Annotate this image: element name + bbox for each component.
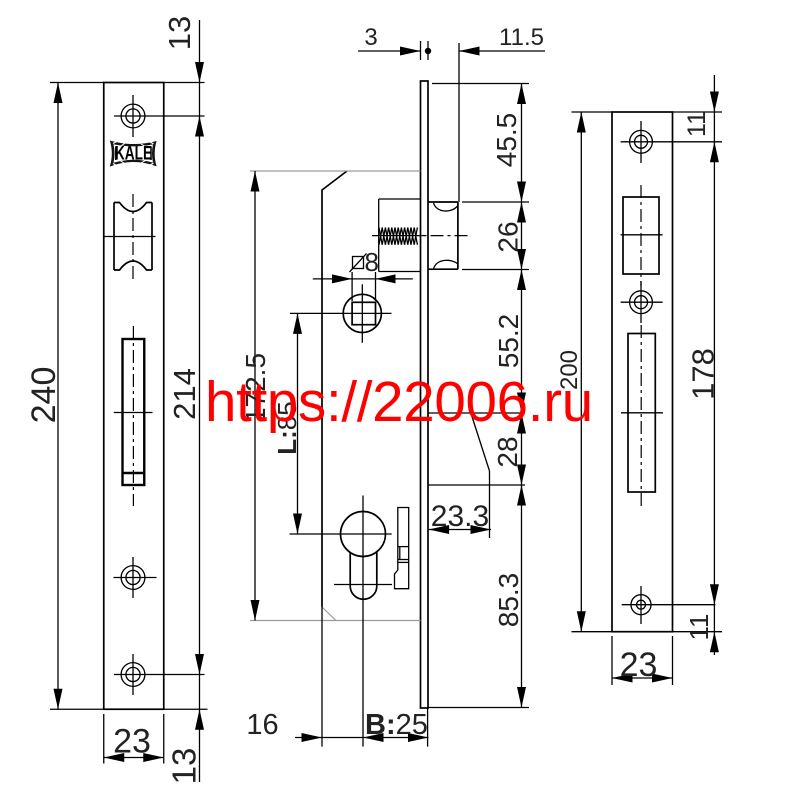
svg-text:55.2: 55.2 [493,314,524,369]
svg-text:23: 23 [620,646,658,684]
svg-text:16: 16 [246,709,278,741]
svg-text:214: 214 [167,368,202,420]
svg-text:3: 3 [364,24,377,51]
svg-text:85.3: 85.3 [493,573,524,628]
svg-text:28: 28 [492,436,523,467]
svg-text:11.5: 11.5 [499,24,544,51]
svg-text:240: 240 [25,367,63,424]
svg-text:23: 23 [113,723,151,761]
svg-text:KALE: KALE [115,142,152,164]
svg-text:178: 178 [686,348,721,400]
svg-text:B:25: B:25 [365,709,428,741]
svg-text:13: 13 [162,16,197,50]
svg-text:23.3: 23.3 [431,500,489,533]
svg-text:https://22006.ru: https://22006.ru [205,370,593,433]
svg-text:11: 11 [684,614,714,641]
svg-text:8: 8 [365,247,379,277]
svg-text:45.5: 45.5 [491,113,522,168]
svg-text:26: 26 [493,221,524,252]
svg-text:13: 13 [166,748,203,785]
svg-text:11: 11 [683,111,711,137]
